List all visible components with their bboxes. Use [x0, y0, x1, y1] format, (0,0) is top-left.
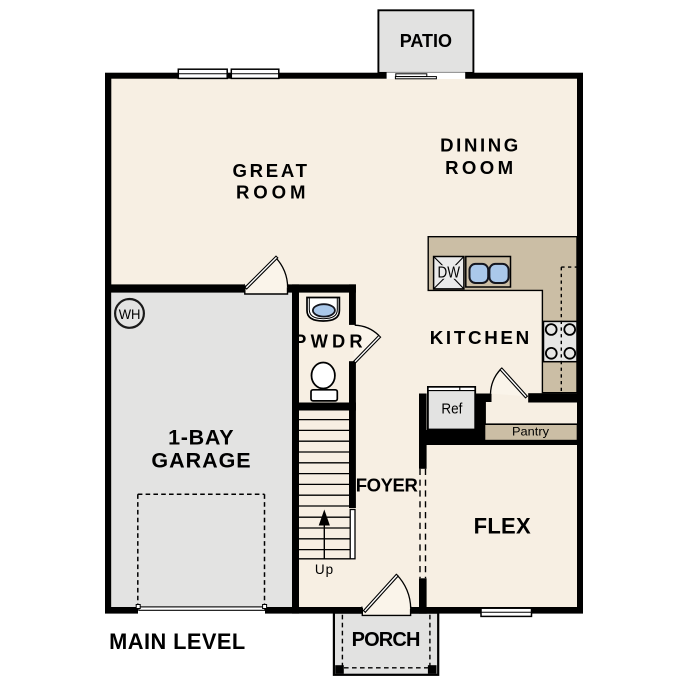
svg-text:KITCHEN: KITCHEN	[430, 327, 532, 348]
svg-text:ROOM: ROOM	[236, 181, 309, 202]
svg-text:FOYER: FOYER	[356, 474, 418, 495]
svg-text:1-BAY: 1-BAY	[168, 426, 234, 450]
svg-text:FLEX: FLEX	[474, 514, 531, 539]
svg-text:ROOM: ROOM	[445, 157, 516, 178]
svg-text:MAIN LEVEL: MAIN LEVEL	[109, 629, 246, 654]
svg-text:WH: WH	[119, 306, 141, 322]
svg-text:Ref: Ref	[441, 401, 463, 417]
svg-text:Pantry: Pantry	[512, 425, 550, 439]
svg-text:PORCH: PORCH	[352, 629, 420, 651]
svg-text:PATIO: PATIO	[400, 31, 452, 51]
svg-text:PWDR: PWDR	[294, 331, 367, 352]
svg-text:GREAT: GREAT	[232, 160, 309, 181]
svg-text:Up: Up	[315, 562, 334, 577]
svg-text:DW: DW	[437, 265, 460, 282]
svg-text:GARAGE: GARAGE	[151, 448, 251, 472]
svg-text:DINING: DINING	[440, 135, 521, 156]
